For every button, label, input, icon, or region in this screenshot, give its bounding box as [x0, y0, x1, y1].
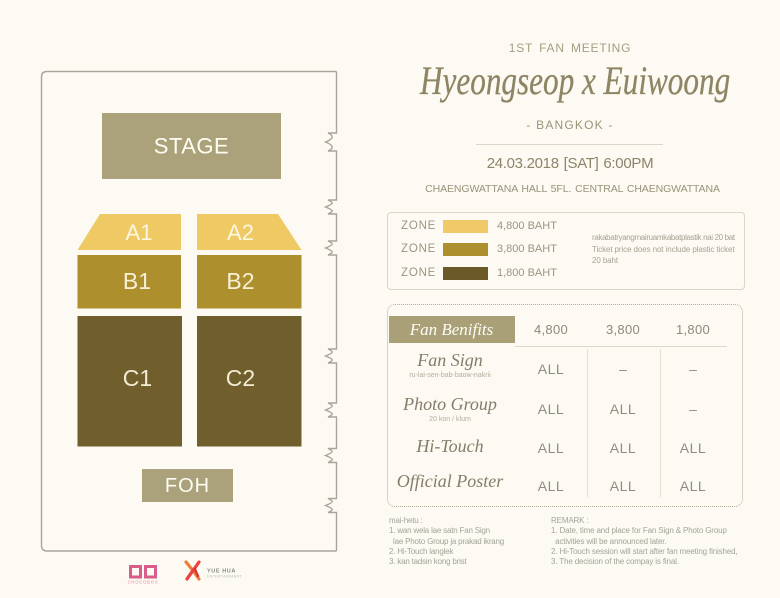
svg-text:B2: B2: [226, 268, 254, 294]
svg-text:A2: A2: [227, 220, 254, 245]
svg-text:B1: B1: [123, 268, 151, 294]
svg-text:CHOCOBOX: CHOCOBOX: [128, 580, 159, 585]
svg-text:C2: C2: [226, 365, 255, 391]
svg-text:FOH: FOH: [165, 475, 210, 497]
svg-text:ENTERTAINMENT: ENTERTAINMENT: [207, 575, 242, 579]
svg-text:A1: A1: [126, 220, 153, 245]
svg-text:STAGE: STAGE: [154, 134, 229, 159]
svg-text:C1: C1: [123, 365, 152, 391]
